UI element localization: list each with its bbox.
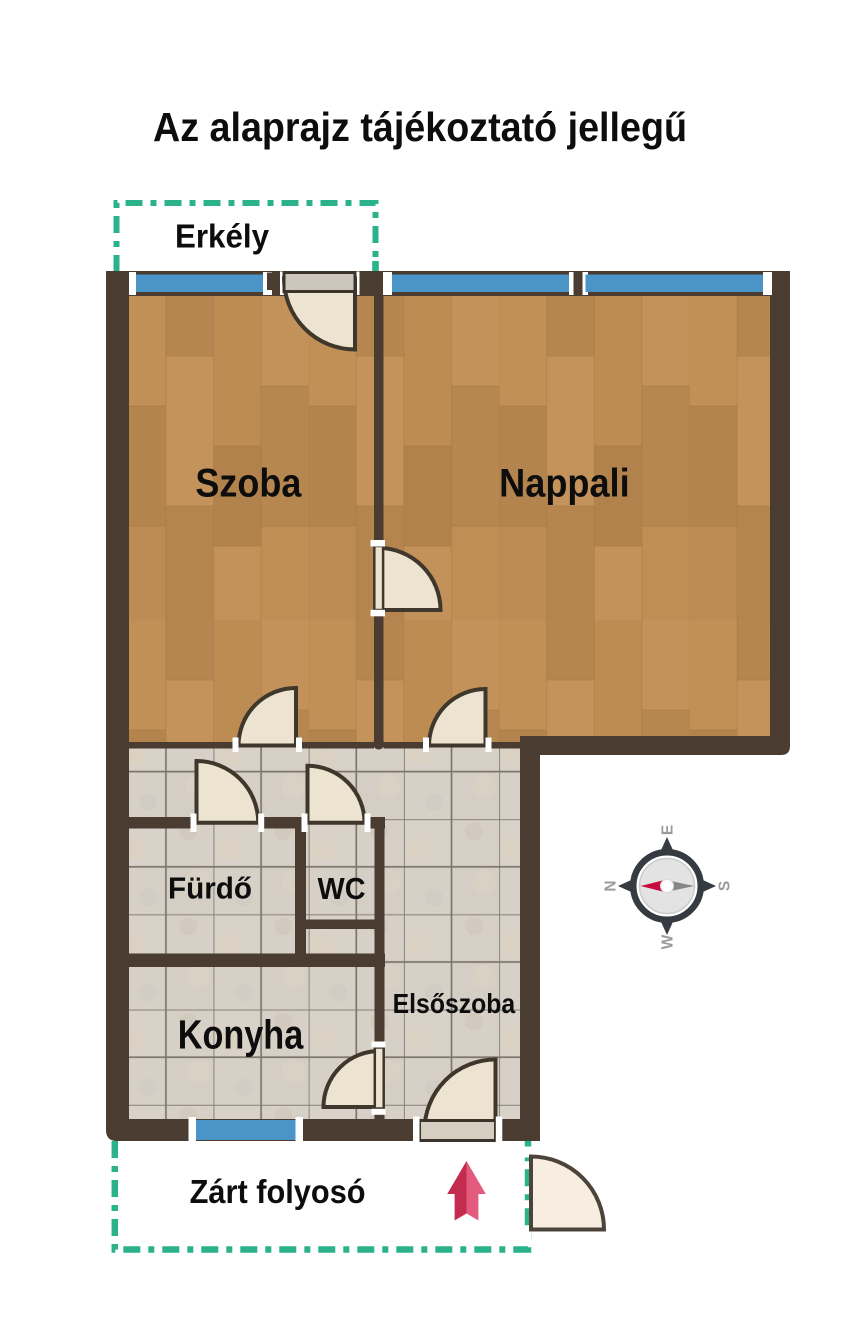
svg-text:Nappali: Nappali: [499, 462, 630, 506]
svg-text:W: W: [660, 934, 677, 949]
svg-text:Fürdő: Fürdő: [168, 871, 252, 906]
svg-text:Elsőszoba: Elsőszoba: [393, 988, 516, 1019]
svg-text:N: N: [603, 880, 620, 891]
svg-text:S: S: [717, 881, 734, 891]
svg-text:Szoba: Szoba: [195, 462, 302, 506]
svg-text:Konyha: Konyha: [178, 1011, 304, 1057]
svg-text:E: E: [660, 825, 677, 835]
svg-text:Zárt folyosó: Zárt folyosó: [190, 1174, 366, 1211]
svg-text:Az alaprajz tájékoztató jelleg: Az alaprajz tájékoztató jellegű: [153, 104, 687, 150]
svg-text:WC: WC: [318, 871, 366, 906]
svg-text:Erkély: Erkély: [175, 218, 270, 255]
